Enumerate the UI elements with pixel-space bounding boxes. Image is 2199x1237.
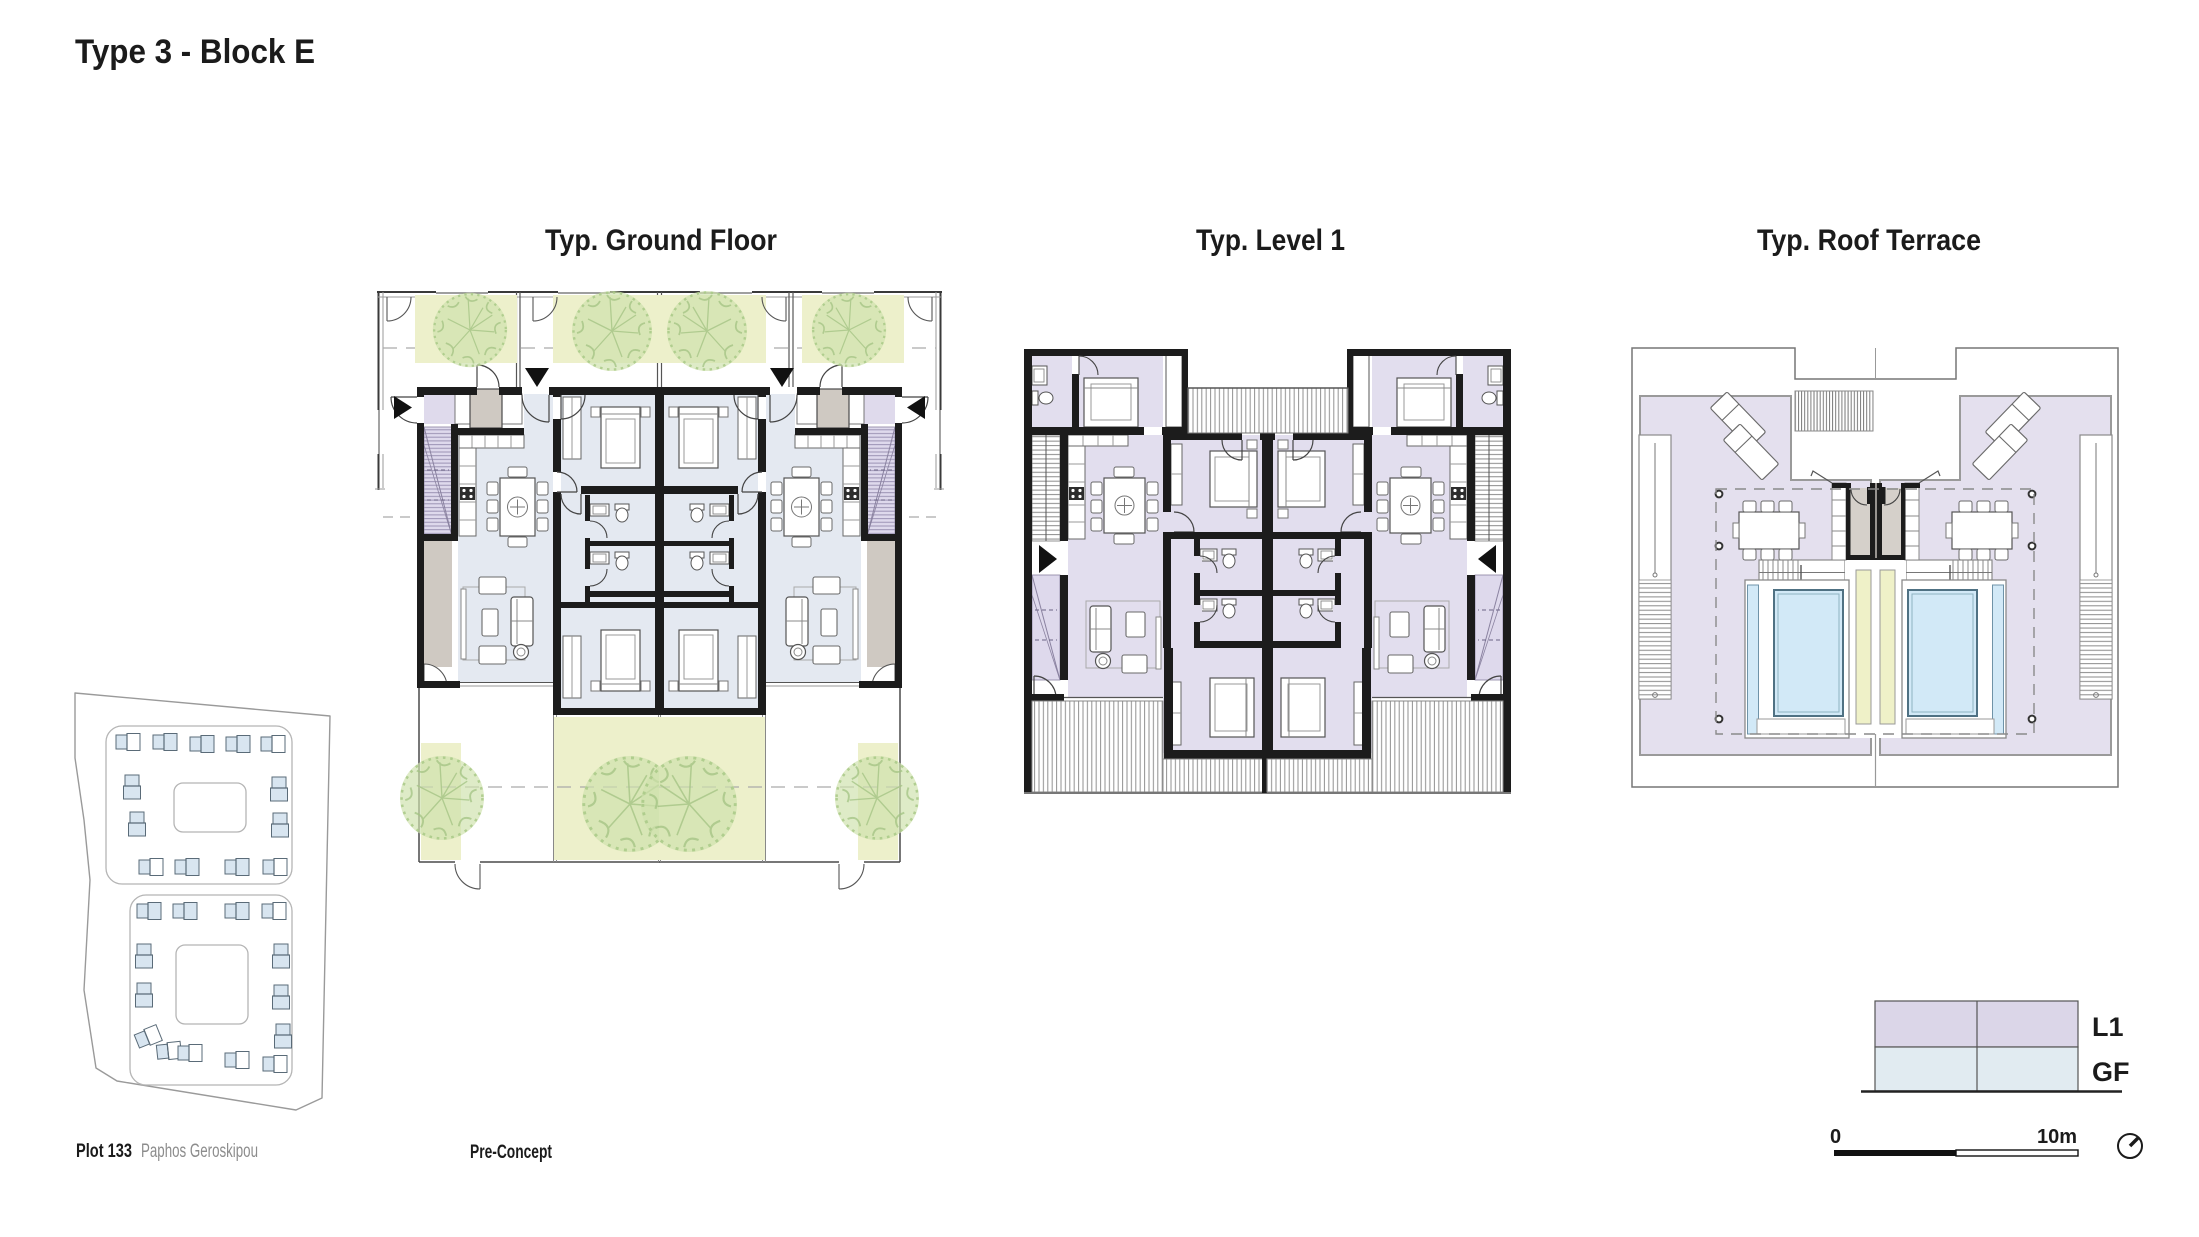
svg-text:Typ. Roof Terrace: Typ. Roof Terrace (1757, 224, 1981, 257)
svg-text:Paphos Geroskipou: Paphos Geroskipou (141, 1141, 258, 1162)
svg-text:Typ. Level 1: Typ. Level 1 (1196, 224, 1345, 257)
svg-text:0: 0 (1830, 1126, 1841, 1148)
svg-text:Type 3 - Block E: Type 3 - Block E (75, 33, 315, 71)
svg-text:Plot 133: Plot 133 (76, 1141, 132, 1162)
svg-text:Pre-Concept: Pre-Concept (470, 1142, 552, 1163)
svg-text:L1: L1 (2092, 1012, 2124, 1042)
svg-text:Typ. Ground Floor: Typ. Ground Floor (545, 224, 777, 257)
svg-text:10m: 10m (2037, 1126, 2077, 1148)
svg-text:GF: GF (2092, 1057, 2130, 1087)
